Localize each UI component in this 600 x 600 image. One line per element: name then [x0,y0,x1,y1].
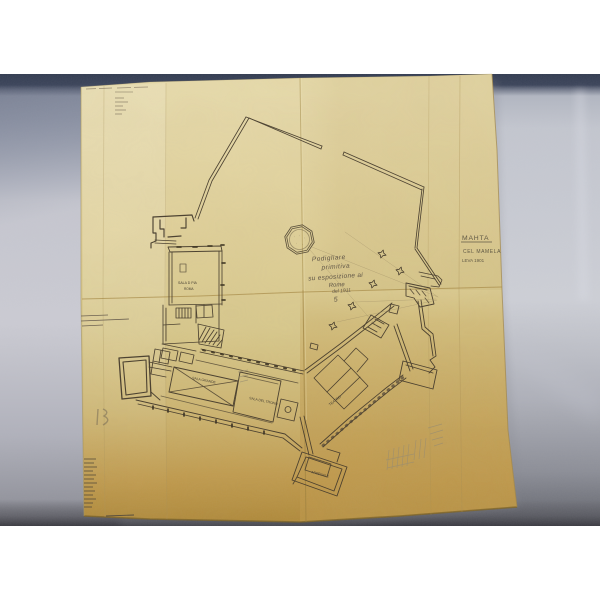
svg-text:CEL MAMELA: CEL MAMELA [463,249,501,255]
svg-text:LEVA 1901: LEVA 1901 [462,258,485,263]
svg-text:5: 5 [334,297,338,304]
svg-text:ROMA: ROMA [184,287,194,291]
svg-text:SALA D PIA: SALA D PIA [178,281,198,285]
svg-text:MAHTA: MAHTA [462,235,489,242]
